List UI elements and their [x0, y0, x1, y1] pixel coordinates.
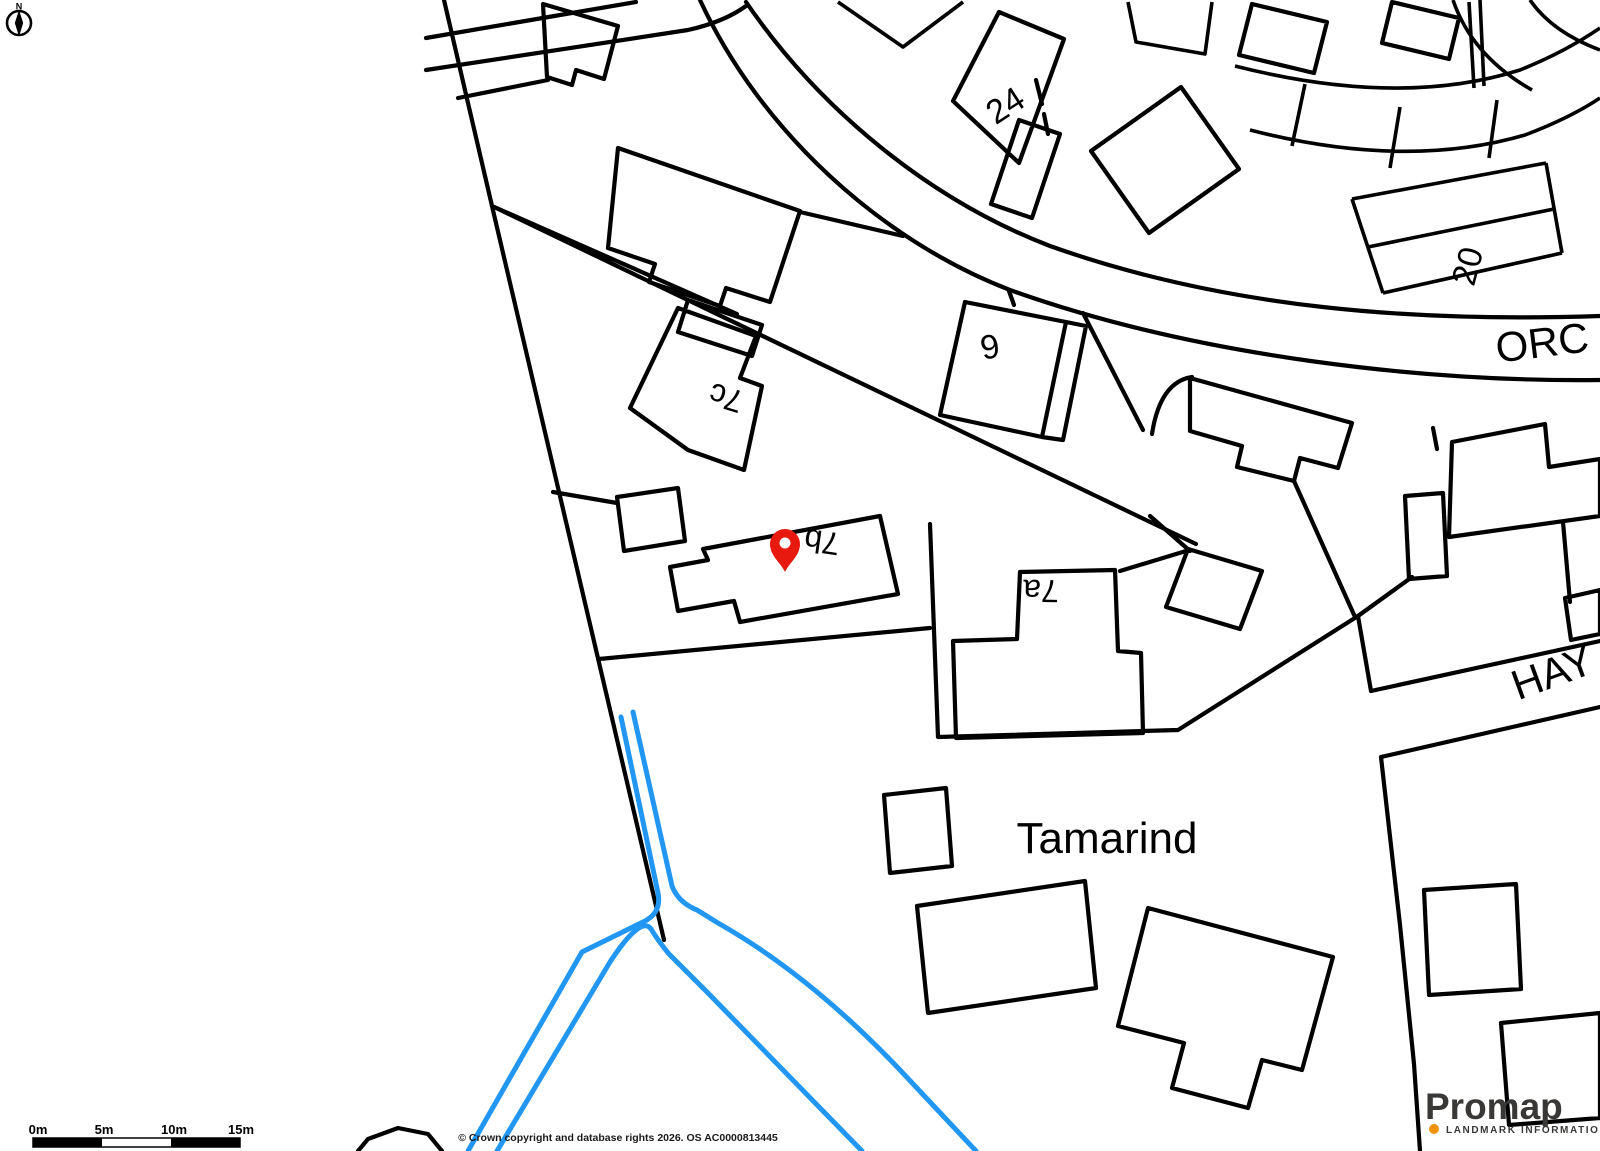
north-compass: N — [7, 2, 31, 37]
promap-logo-subtitle: LANDMARK INFORMATION — [1446, 1125, 1600, 1136]
plot-label-6: 6 — [977, 326, 1002, 367]
scale-bar-segment-dark-1 — [33, 1138, 102, 1147]
compass-needle-icon — [15, 10, 23, 37]
terrace-lines — [838, 0, 1600, 293]
pin-hole — [780, 538, 791, 549]
plot-label-7c: 7c — [705, 376, 748, 420]
pin-body[interactable] — [770, 529, 800, 572]
location-pin[interactable] — [770, 529, 800, 572]
road-label-hay-partial: HAY — [1505, 636, 1599, 709]
plot-label-20: 20 — [1445, 243, 1491, 289]
map-viewport[interactable]: 24 20 6 7c 7b 7a Tamarind ORC HAY N 0m 5… — [0, 0, 1600, 1151]
scale-tick-15m: 15m — [228, 1122, 254, 1137]
map-linework — [358, 0, 1600, 1151]
road-label-orchard-partial: ORC — [1493, 313, 1591, 371]
scale-tick-0m: 0m — [29, 1122, 48, 1137]
plot-label-7a: 7a — [1023, 573, 1059, 610]
scale-bar: 0m 5m 10m 15m — [29, 1122, 254, 1147]
plot-label-24: 24 — [979, 80, 1031, 132]
scale-tick-10m: 10m — [161, 1122, 187, 1137]
highlight-path-inner-v — [497, 926, 862, 1151]
plot-label-7b: 7b — [802, 522, 842, 563]
promap-logo: Promap LANDMARK INFORMATION — [1425, 1086, 1600, 1136]
scale-tick-5m: 5m — [95, 1122, 114, 1137]
property-label-tamarind: Tamarind — [1017, 814, 1198, 863]
promap-logo-wordmark: Promap — [1425, 1086, 1563, 1127]
route-highlight-path — [468, 712, 976, 1151]
scale-bar-segment-dark-2 — [171, 1138, 240, 1147]
map-canvas[interactable]: 24 20 6 7c 7b 7a Tamarind ORC HAY N 0m 5… — [0, 0, 1600, 1151]
highlight-path-right-edge — [633, 712, 976, 1151]
landmark-dot-icon — [1429, 1124, 1439, 1134]
map-labels: 24 20 6 7c 7b 7a Tamarind ORC HAY — [705, 80, 1600, 863]
copyright-attribution: © Crown copyright and database rights 20… — [458, 1132, 778, 1144]
